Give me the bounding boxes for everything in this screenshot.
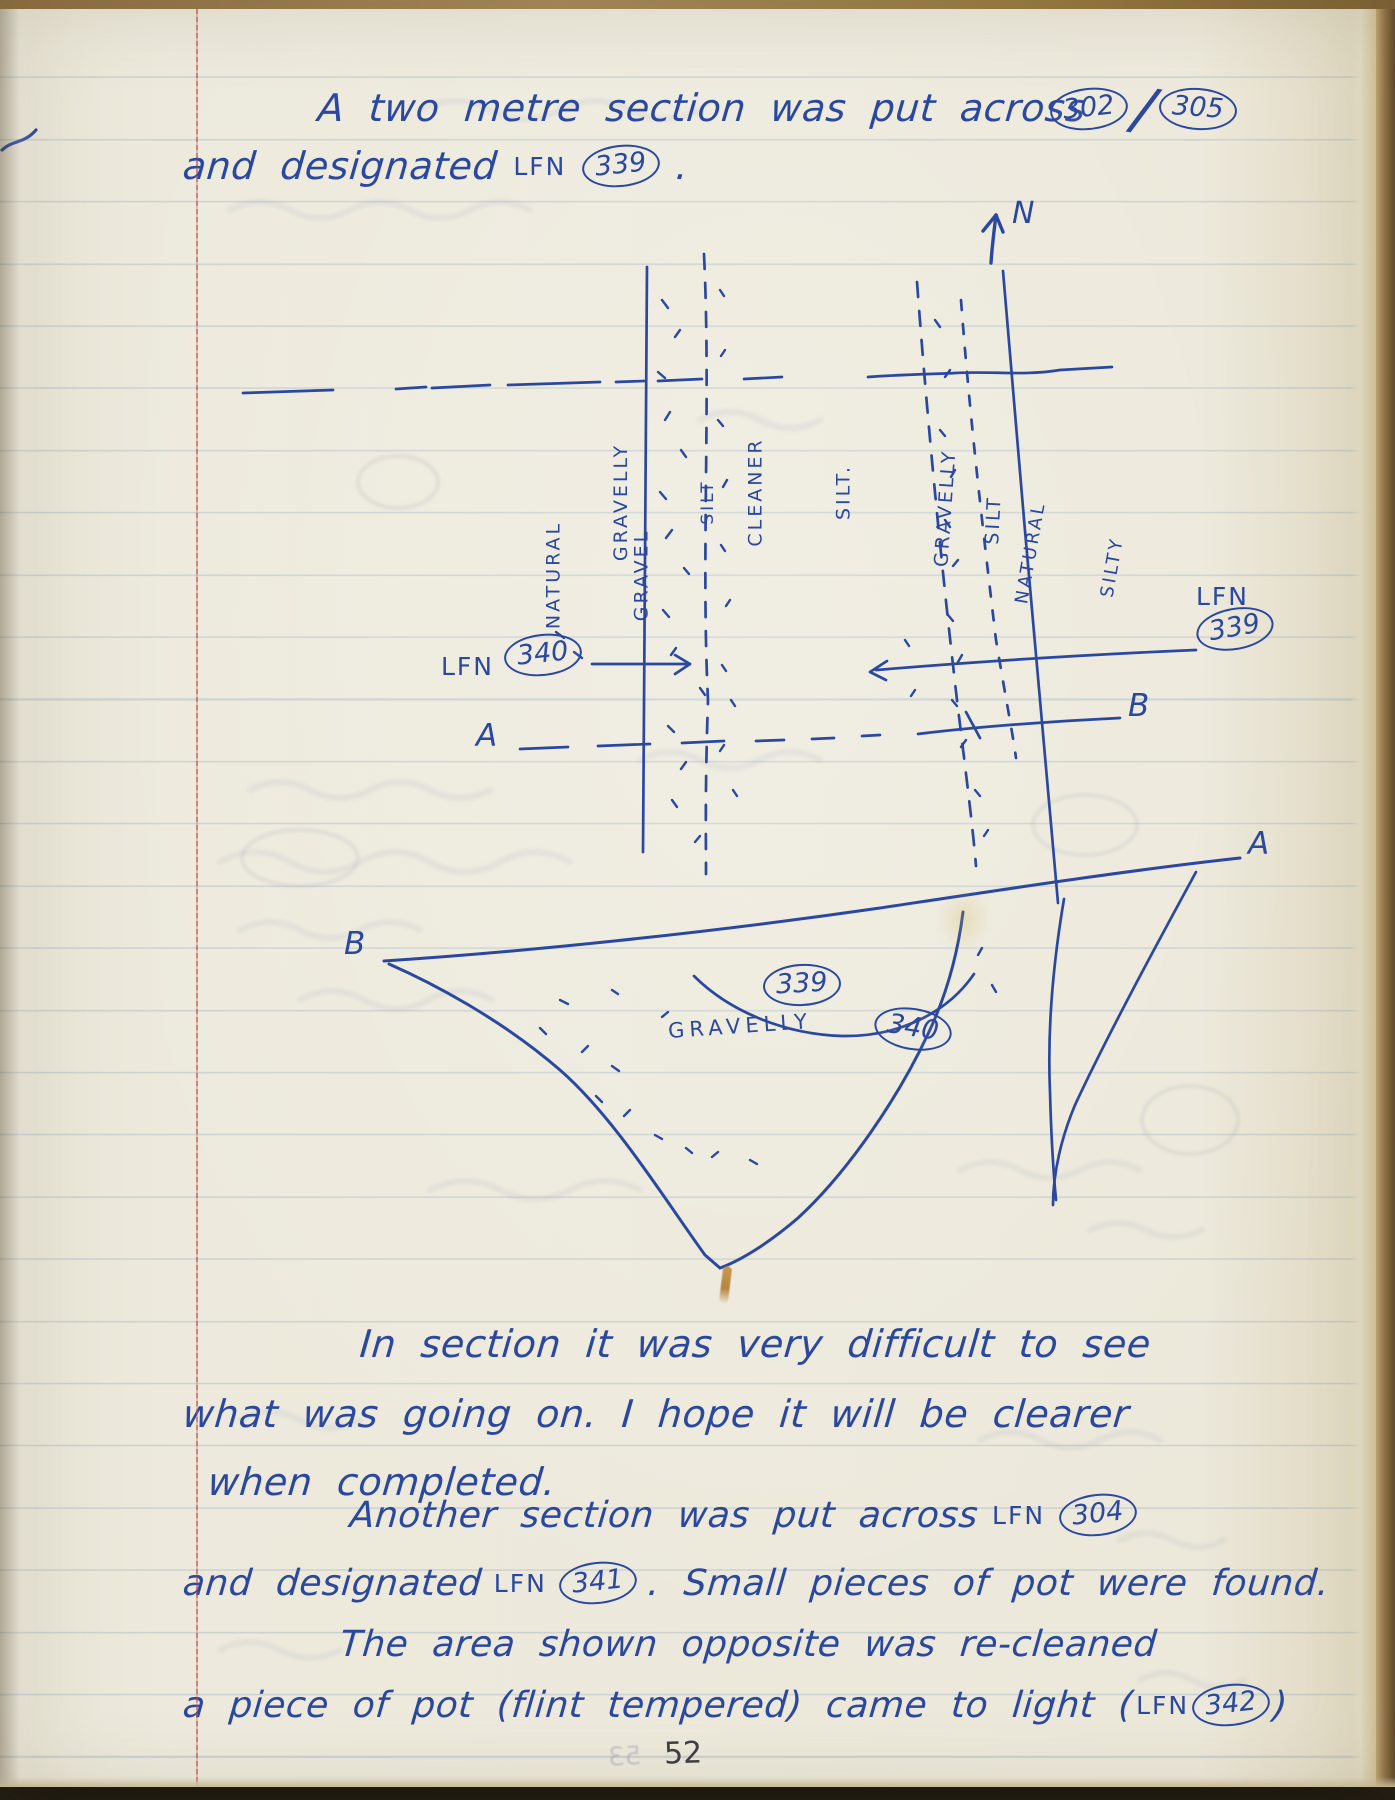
para2-line4-pre: a piece of pot (flint tempered) came to … xyxy=(181,1685,1135,1726)
plan-marker-b: B xyxy=(1128,688,1149,724)
page-edge-right xyxy=(1350,0,1376,1800)
paper-stain xyxy=(938,888,990,950)
lfn-304-circled: 304 xyxy=(1057,1490,1139,1540)
notebook-page: A two metre section was put across 302 /… xyxy=(0,0,1395,1800)
notebook-cover-edge-top xyxy=(0,0,1395,9)
section-marker-a: A xyxy=(1248,826,1269,862)
lfn-339-circled: 339 xyxy=(580,141,662,191)
header-line-1: A two metre section was put across xyxy=(316,86,1088,130)
para2-line1-text: Another section was put across xyxy=(348,1495,980,1536)
lfn-341-circled: 341 xyxy=(557,1558,639,1608)
ref-305-circled: 305 xyxy=(1158,85,1238,133)
lfn-label: LFN xyxy=(513,152,566,181)
page-edge-bottom xyxy=(0,1777,1395,1787)
north-label: N xyxy=(1012,196,1034,231)
page-curl-shadow xyxy=(0,0,36,1800)
para2-line2-pre: and designated xyxy=(181,1563,483,1604)
header-refs: 302 / 305 xyxy=(1050,86,1237,132)
page-number: 52 xyxy=(663,1735,702,1771)
lfn-342-label: LFN xyxy=(1136,1691,1189,1720)
header-line-2-text: and designated xyxy=(181,144,499,188)
ref-302-circled: 302 xyxy=(1048,84,1130,134)
lfn-342-circled: 342 xyxy=(1190,1680,1272,1730)
para2-line4: a piece of pot (flint tempered) came to … xyxy=(183,1684,1287,1726)
plan-marker-a: A xyxy=(476,718,497,754)
para1-line2: what was going on. I hope it will be cle… xyxy=(181,1392,1131,1436)
header-line-2-period: . xyxy=(674,144,690,188)
ref-separator: / xyxy=(1130,85,1157,134)
para2-line2: and designated LFN 341 . Small pieces of… xyxy=(183,1562,1330,1604)
lfn-341-label: LFN xyxy=(494,1569,547,1598)
lfn-340-label: LFN xyxy=(441,652,494,681)
para1-line1: In section it was very difficult to see xyxy=(358,1322,1153,1366)
para2-line2-post: . Small pieces of pot were found. xyxy=(647,1563,1332,1604)
para2-line3: The area shown opposite was re-cleaned xyxy=(338,1624,1158,1665)
margin-rule xyxy=(196,9,198,1787)
notebook-cover-edge-right xyxy=(1376,0,1395,1800)
section-marker-b: B xyxy=(344,926,365,962)
notebook-cover-edge-bottom xyxy=(0,1787,1395,1800)
bleed-through-page-number: 53 xyxy=(607,1741,642,1773)
lfn-304-label: LFN xyxy=(992,1501,1045,1530)
para2-line4-post: ) xyxy=(1271,1685,1289,1726)
para2-line1: Another section was put across LFN 304 xyxy=(350,1494,1137,1536)
header-line-2: and designated LFN 339 . xyxy=(183,144,688,188)
